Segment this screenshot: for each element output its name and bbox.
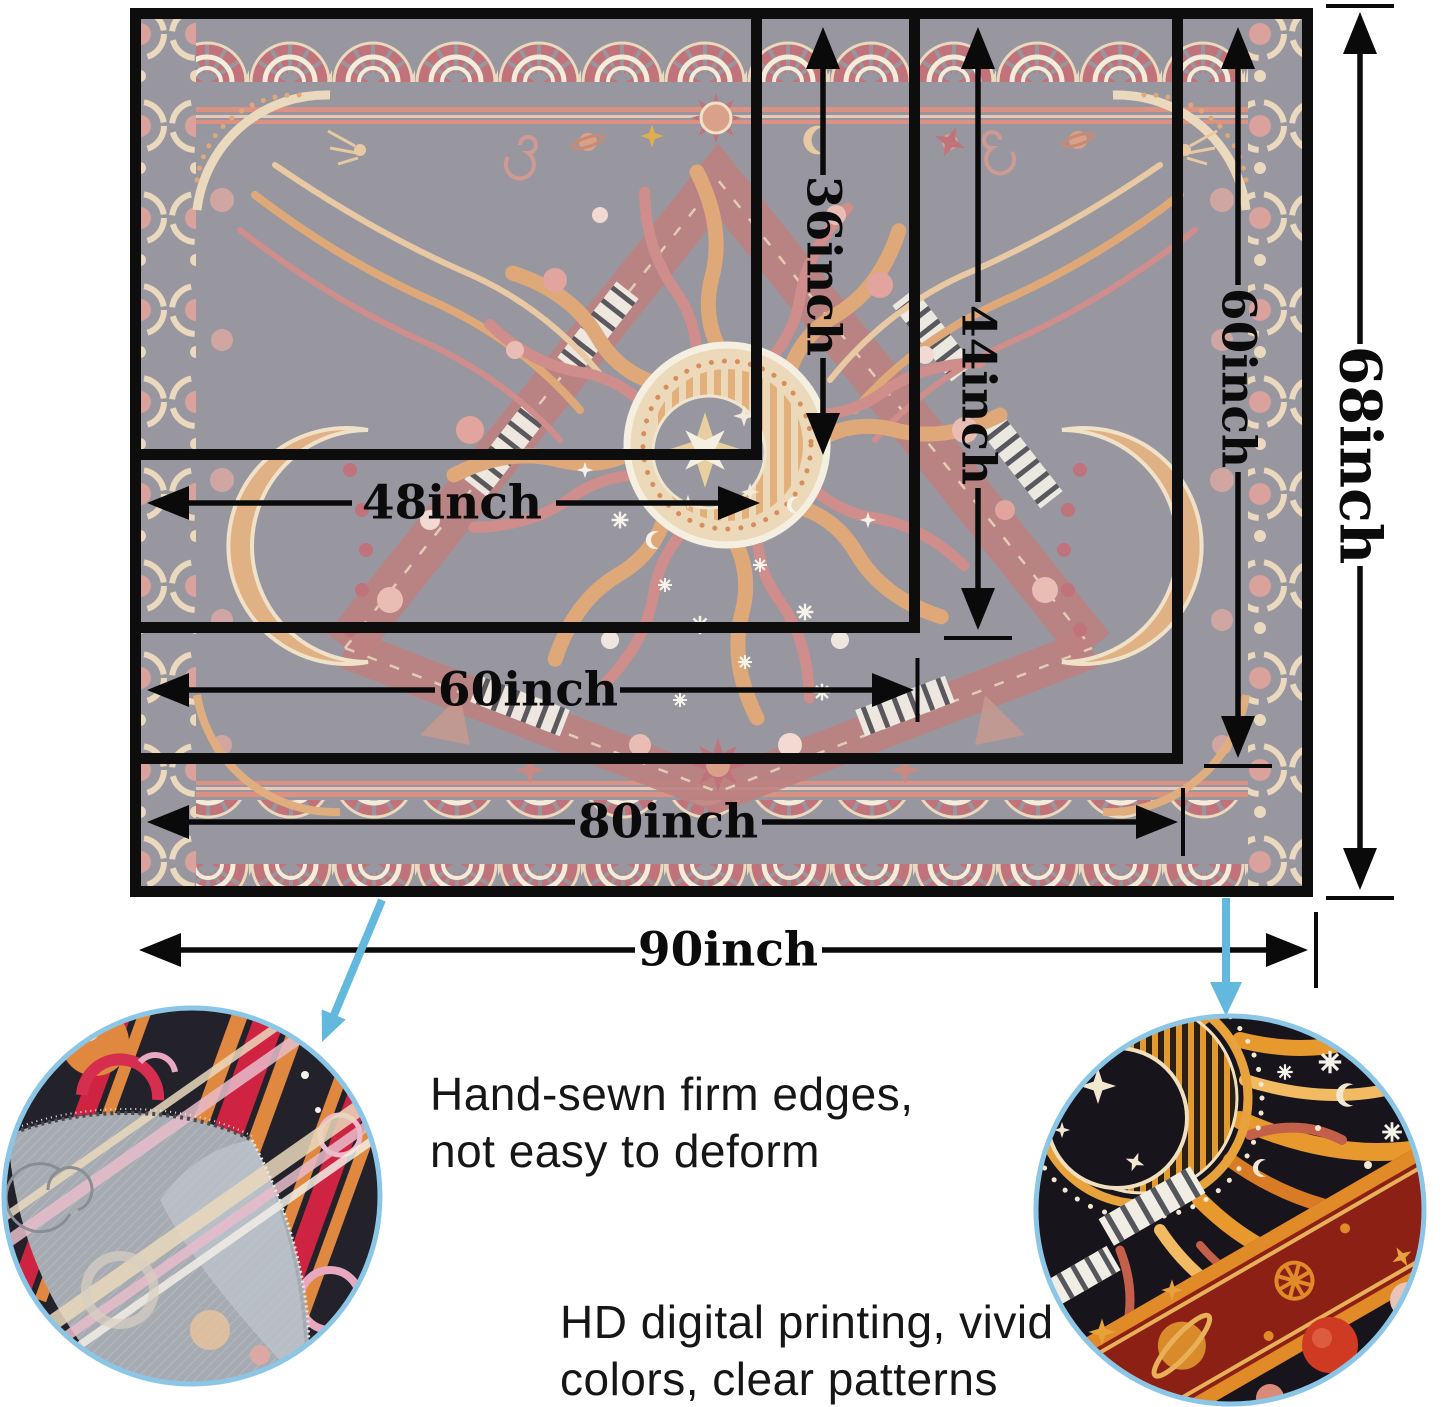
label-width-48inch: 48inch: [362, 480, 542, 527]
scallop-border-top: [196, 19, 1248, 105]
feature-handsewn-line2: not easy to deform: [430, 1123, 913, 1180]
label-width-60inch: 60inch: [438, 667, 618, 714]
size-diagram-graphic: [0, 0, 1445, 1407]
label-height-68inch: 68inch: [1332, 346, 1389, 565]
label-height-44inch: 44inch: [955, 305, 1002, 485]
label-height-36inch: 36inch: [800, 176, 847, 356]
fabric-edge-detail-photo: [0, 895, 426, 1407]
label-width-90inch: 90inch: [638, 927, 818, 974]
blue-arrow-left: [334, 900, 382, 1015]
product-size-infographic: 48inch 60inch 80inch 90inch 36inch 44inc…: [0, 0, 1445, 1407]
feature-text-handsewn: Hand-sewn firm edges, not easy to deform: [430, 1066, 913, 1180]
feature-text-hd-printing: HD digital printing, vivid colors, clear…: [560, 1294, 1054, 1407]
label-width-80inch: 80inch: [578, 799, 758, 846]
feature-handsewn-line1: Hand-sewn firm edges,: [430, 1066, 913, 1123]
label-height-60inch: 60inch: [1215, 288, 1262, 468]
feature-hd-line2: colors, clear patterns: [560, 1351, 1054, 1407]
blue-arrowhead-right: [1210, 982, 1242, 1016]
feature-hd-line1: HD digital printing, vivid: [560, 1294, 1054, 1351]
